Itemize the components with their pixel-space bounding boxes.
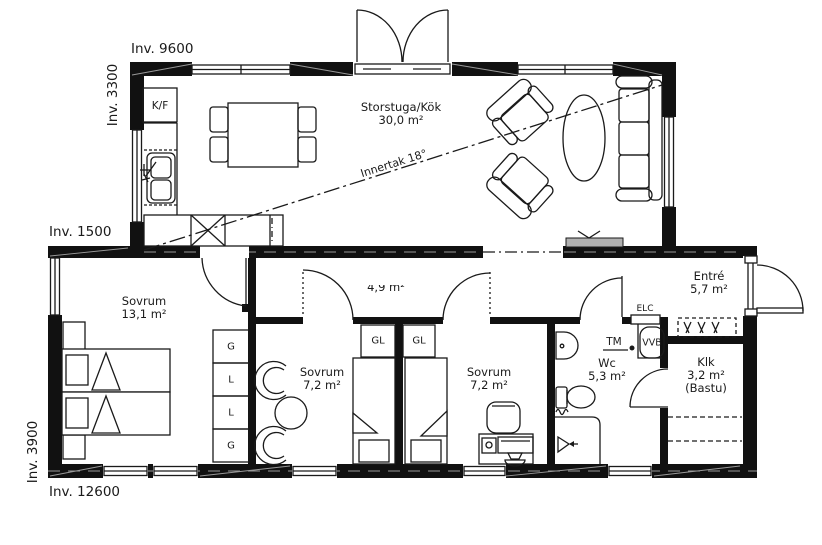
window (292, 464, 337, 478)
toilet (556, 386, 595, 408)
round-table (275, 397, 307, 429)
window (48, 258, 62, 315)
room-label-storstuga: Storstuga/Kök 30,0 m² (361, 101, 441, 127)
closet-label-gl-right: GL (412, 336, 425, 347)
wardrobe-cell-label: L (228, 408, 234, 419)
window (608, 464, 652, 478)
window (130, 130, 144, 222)
dimension-label-bottom: Inv. 12600 (49, 484, 120, 500)
front-door (743, 256, 803, 316)
wardrobe-cell-label: G (227, 441, 235, 452)
dimension-label-top: Inv. 9600 (131, 41, 193, 57)
electrical-label: ELC (637, 304, 654, 314)
room-label-sovrum-right: Sovrum 7,2 m² (467, 366, 511, 392)
washing-machine-label: TM (606, 336, 621, 348)
room-label-klk: Klk 3,2 m² (Bastu) (685, 356, 727, 395)
wardrobe-cell-label: L (228, 375, 234, 386)
twin-bed (405, 358, 447, 464)
opening-hall (483, 246, 563, 258)
dining-table (228, 103, 298, 167)
dining-group (210, 103, 316, 167)
room-label-entre: Entré 5,7 m² (690, 270, 728, 296)
desk (479, 434, 533, 466)
dining-chair (298, 137, 316, 162)
patio-double-door (353, 10, 452, 76)
armchair (482, 148, 557, 222)
tv-bench (566, 231, 623, 247)
door-bedroom-right (443, 272, 490, 324)
nightstand (63, 322, 85, 350)
room-note: (Bastu) (685, 382, 727, 395)
window (153, 464, 198, 478)
window (463, 464, 506, 478)
dining-chair (298, 107, 316, 132)
floor-plan: Inv. 9600 Inv. 3300 Inv. 1500 Inv. 3900 … (0, 0, 822, 545)
bedroom-large-group (62, 322, 249, 462)
window (192, 62, 290, 76)
wardrobe-cell-label: G (227, 342, 235, 353)
window (662, 117, 676, 207)
door-bedroom-mid (303, 270, 353, 324)
water-heater-label: VVB (642, 338, 662, 349)
room-area: 4,9 m² (356, 285, 416, 293)
dining-chair (210, 137, 228, 162)
door-klk (630, 368, 668, 408)
sofa (616, 76, 662, 201)
door-bedroom-large (200, 246, 250, 312)
twin-bed (353, 358, 395, 464)
dimension-label-left-middle: Inv. 1500 (49, 224, 111, 240)
window (103, 464, 148, 478)
coffee-table (563, 95, 605, 181)
fan-chair (255, 427, 286, 465)
door-wc (580, 276, 622, 324)
computer-monitor (498, 437, 533, 453)
room-area: 13,1 m² (121, 308, 166, 321)
dining-chair (210, 107, 228, 132)
room-label-hall: 4,9 m² (356, 285, 416, 293)
room-area: 5,3 m² (588, 370, 626, 383)
living-room-group (482, 75, 662, 247)
room-area: 7,2 m² (467, 379, 511, 392)
room-label-sovrum-large: Sovrum 13,1 m² (121, 295, 166, 321)
room-area: 5,7 m² (690, 283, 728, 296)
kitchen-sink (140, 150, 177, 205)
double-bed (62, 349, 170, 435)
closet-label-gl-left: GL (371, 336, 384, 347)
fridge-freezer-label: K/F (152, 100, 168, 112)
room-label-wc: Wc 5,3 m² (588, 357, 626, 383)
room-label-sovrum-mid: Sovrum 7,2 m² (300, 366, 344, 392)
dimension-label-left-lower: Inv. 3900 (25, 421, 41, 483)
bathroom-sink (556, 332, 578, 359)
armchair (482, 75, 557, 149)
fan-chair (255, 362, 286, 400)
electrical-cabinet (631, 315, 660, 324)
dimension-label-left-upper: Inv. 3300 (105, 64, 121, 126)
nightstand (63, 435, 85, 459)
room-area: 7,2 m² (300, 379, 344, 392)
kitchen-counter (144, 215, 283, 246)
coat-rack (678, 318, 736, 337)
sauna-benches (668, 417, 742, 441)
room-area: 30,0 m² (361, 114, 441, 127)
shower (555, 410, 600, 465)
window (518, 62, 613, 76)
